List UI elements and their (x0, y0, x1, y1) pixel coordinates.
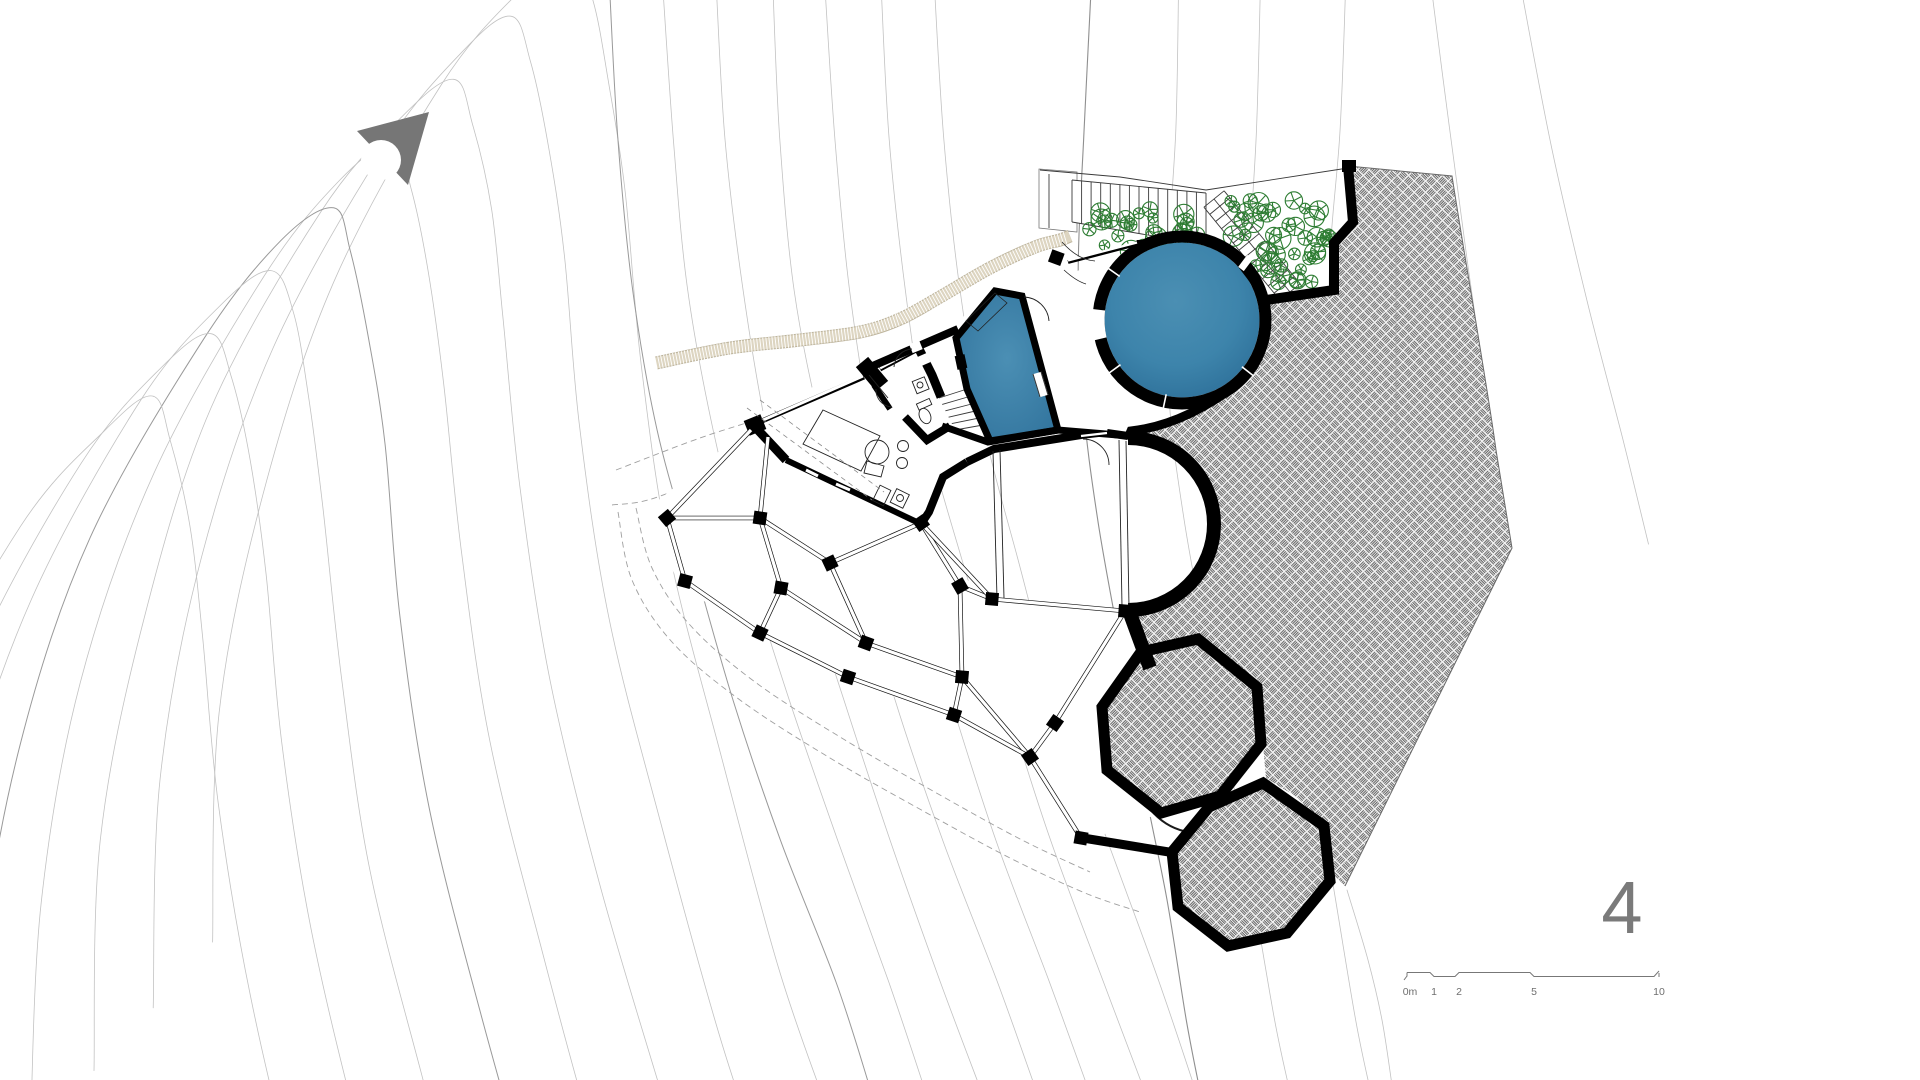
svg-text:0m: 0m (1403, 986, 1418, 998)
svg-text:5: 5 (1531, 986, 1537, 998)
svg-text:4: 4 (1601, 866, 1642, 949)
svg-text:2: 2 (1456, 986, 1462, 998)
svg-text:1: 1 (1431, 986, 1437, 998)
svg-text:10: 10 (1653, 986, 1665, 998)
